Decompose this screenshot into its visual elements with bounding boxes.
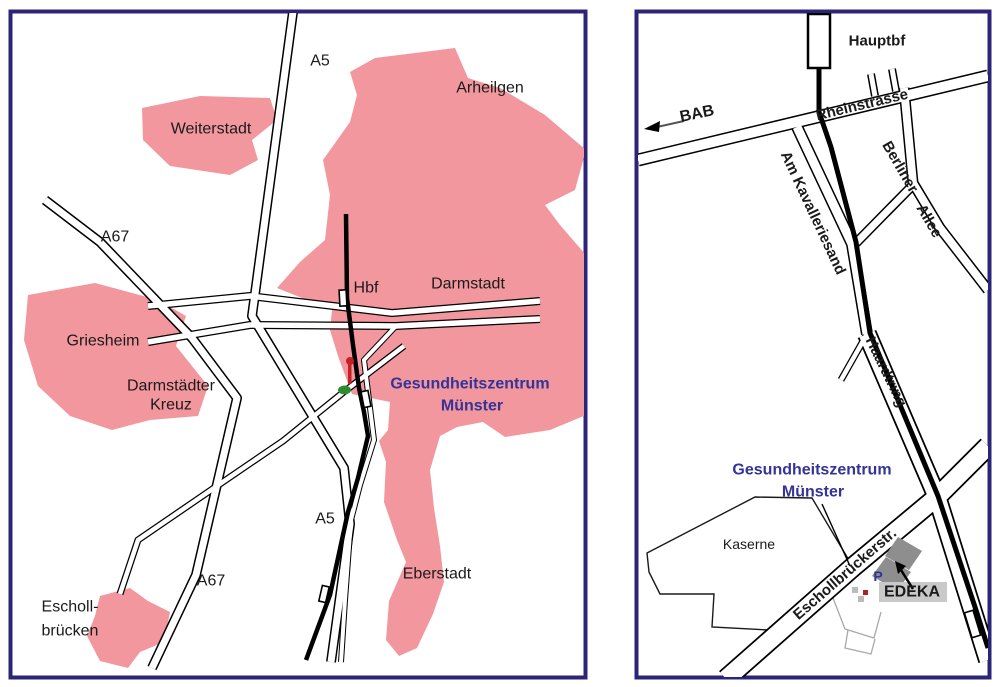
label-a67-north: A67	[101, 229, 130, 246]
label-destination-right-line2: Münster	[782, 484, 844, 501]
detail-map: Hauptbf BAB Rheinstrasse Am Kavalleriesa…	[637, 12, 990, 680]
label-hauptbf: Hauptbf	[849, 33, 907, 50]
green-location-dot-icon	[338, 386, 351, 395]
red-pin-rod	[348, 361, 352, 384]
label-destination-line2: Münster	[441, 398, 503, 415]
entrance-dot-icon	[863, 590, 868, 595]
label-a67-south: A67	[197, 573, 226, 590]
label-eschollbruecken-line1: Escholl-	[42, 599, 99, 616]
label-arheilgen: Arheilgen	[456, 80, 524, 97]
building-small-1	[852, 587, 858, 593]
label-edeka: EDEKA	[884, 584, 940, 601]
hauptbf-station-symbol	[808, 14, 830, 68]
label-darmstaedter-kreuz-line1: Darmstädter	[127, 378, 216, 395]
label-destination-line1: Gesundheitszentrum	[390, 376, 549, 393]
label-destination-right-line1: Gesundheitszentrum	[732, 462, 891, 479]
map-figure: A5 Weiterstadt Arheilgen A67 Darmstadt H…	[0, 0, 1000, 687]
label-a5-north: A5	[310, 53, 330, 70]
label-darmstadt: Darmstadt	[431, 276, 505, 293]
maps-canvas: A5 Weiterstadt Arheilgen A67 Darmstadt H…	[0, 0, 1000, 687]
label-eschollbruecken-line2: brücken	[42, 623, 99, 640]
label-a5-south: A5	[315, 511, 335, 528]
overview-map: A5 Weiterstadt Arheilgen A67 Darmstadt H…	[11, 12, 587, 678]
label-kaserne: Kaserne	[723, 536, 775, 552]
label-eberstadt: Eberstadt	[403, 566, 472, 583]
label-darmstaedter-kreuz-line2: Kreuz	[150, 397, 192, 414]
label-parking: P	[873, 568, 882, 584]
tram-stop-marker-hbf	[339, 290, 347, 306]
label-hbf: Hbf	[354, 280, 379, 297]
building-small-2	[858, 596, 864, 602]
label-griesheim: Griesheim	[67, 333, 140, 350]
label-weiterstadt: Weiterstadt	[171, 121, 252, 138]
